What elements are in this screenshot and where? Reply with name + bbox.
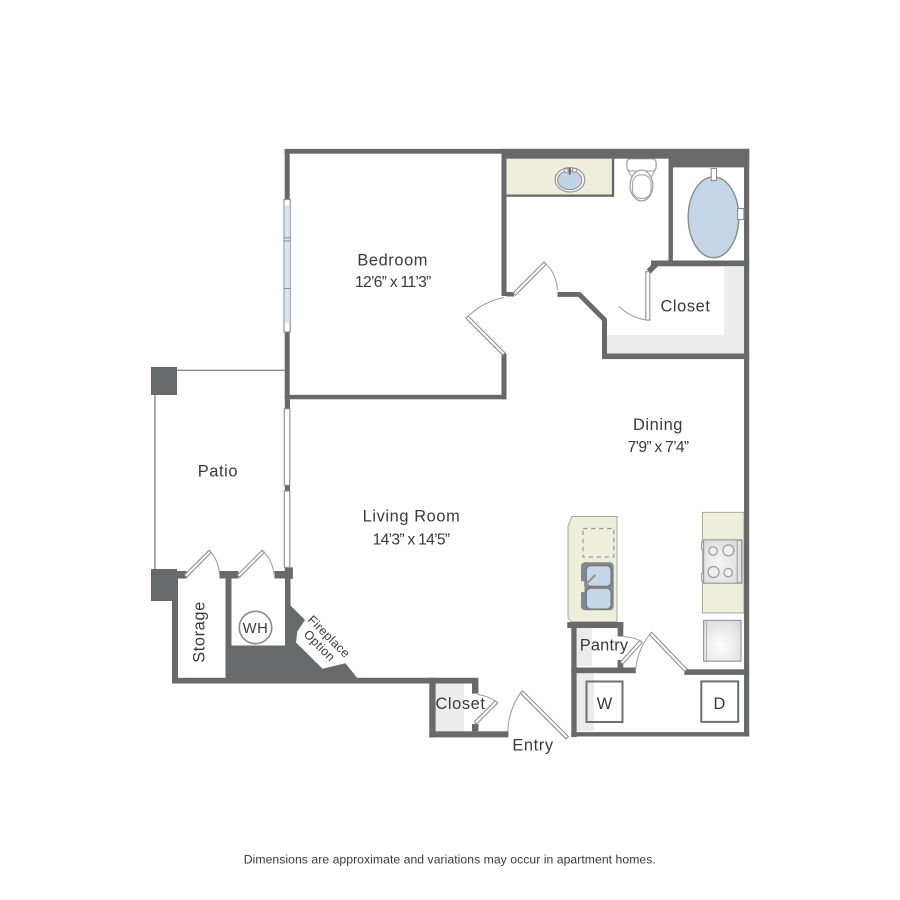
svg-text:Entry: Entry	[512, 737, 553, 755]
svg-text:12’6” x 11’3”: 12’6” x 11’3”	[355, 274, 431, 291]
svg-text:Pantry: Pantry	[580, 636, 629, 654]
svg-text:Living Room: Living Room	[363, 507, 461, 525]
svg-text:Closet: Closet	[435, 695, 485, 713]
svg-text:14’3” x 14’5”: 14’3” x 14’5”	[373, 531, 450, 548]
svg-text:Dining: Dining	[633, 416, 683, 434]
svg-text:Patio: Patio	[198, 462, 238, 480]
svg-text:Storage: Storage	[191, 601, 209, 663]
svg-text:Dimensions are approximate and: Dimensions are approximate and variation…	[244, 853, 656, 867]
svg-text:Bedroom: Bedroom	[357, 252, 428, 270]
svg-text:7’9” x 7’4”: 7’9” x 7’4”	[628, 439, 689, 456]
svg-text:W: W	[597, 695, 613, 713]
svg-text:D: D	[713, 695, 725, 713]
svg-text:Closet: Closet	[660, 298, 710, 316]
svg-text:WH: WH	[243, 621, 269, 637]
